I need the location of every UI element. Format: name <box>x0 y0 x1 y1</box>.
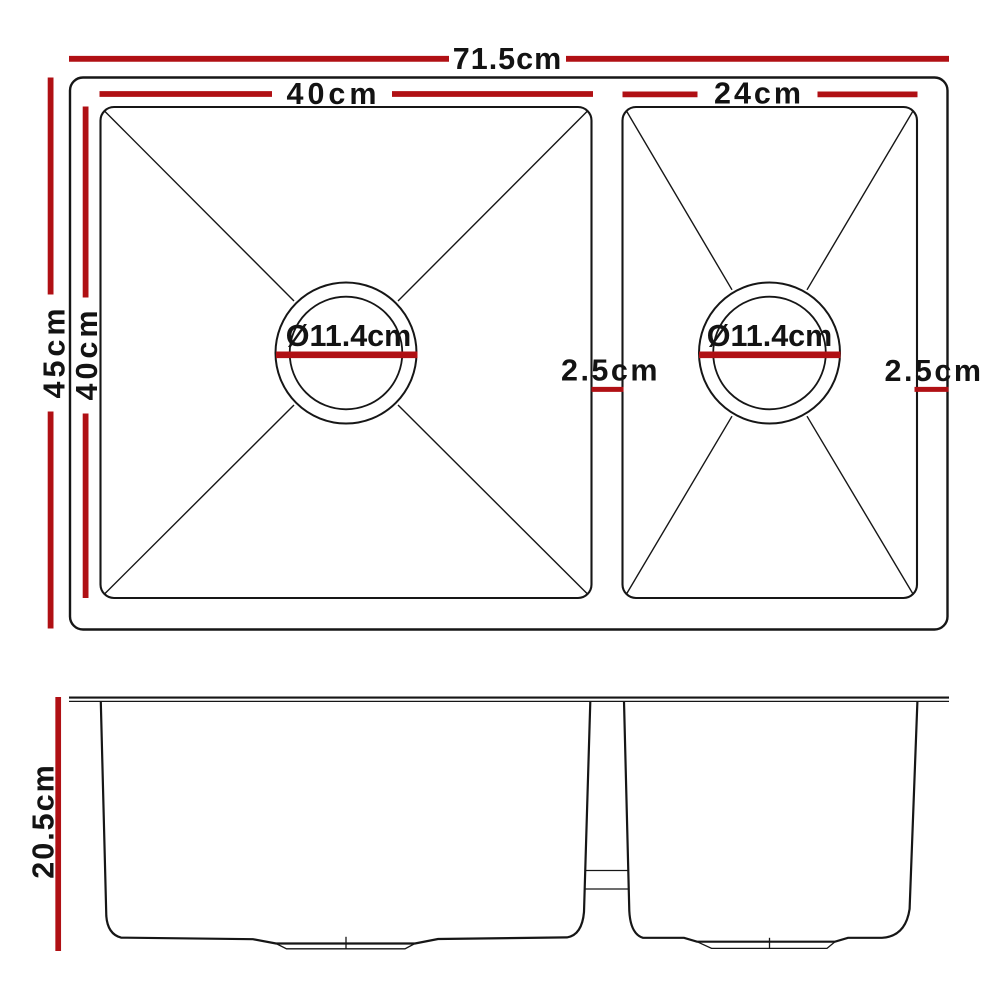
svg-text:24cm: 24cm <box>714 77 804 111</box>
svg-text:40cm: 40cm <box>286 77 380 111</box>
svg-text:2.5cm: 2.5cm <box>561 354 660 388</box>
svg-text:Ø11.4cm: Ø11.4cm <box>286 319 412 353</box>
svg-text:2.5cm: 2.5cm <box>885 354 984 388</box>
svg-text:71.5cm: 71.5cm <box>453 42 562 76</box>
svg-text:40cm: 40cm <box>70 306 104 400</box>
svg-text:45cm: 45cm <box>38 304 72 398</box>
svg-text:Ø11.4cm: Ø11.4cm <box>707 319 833 353</box>
svg-text:20.5cm: 20.5cm <box>27 763 61 878</box>
